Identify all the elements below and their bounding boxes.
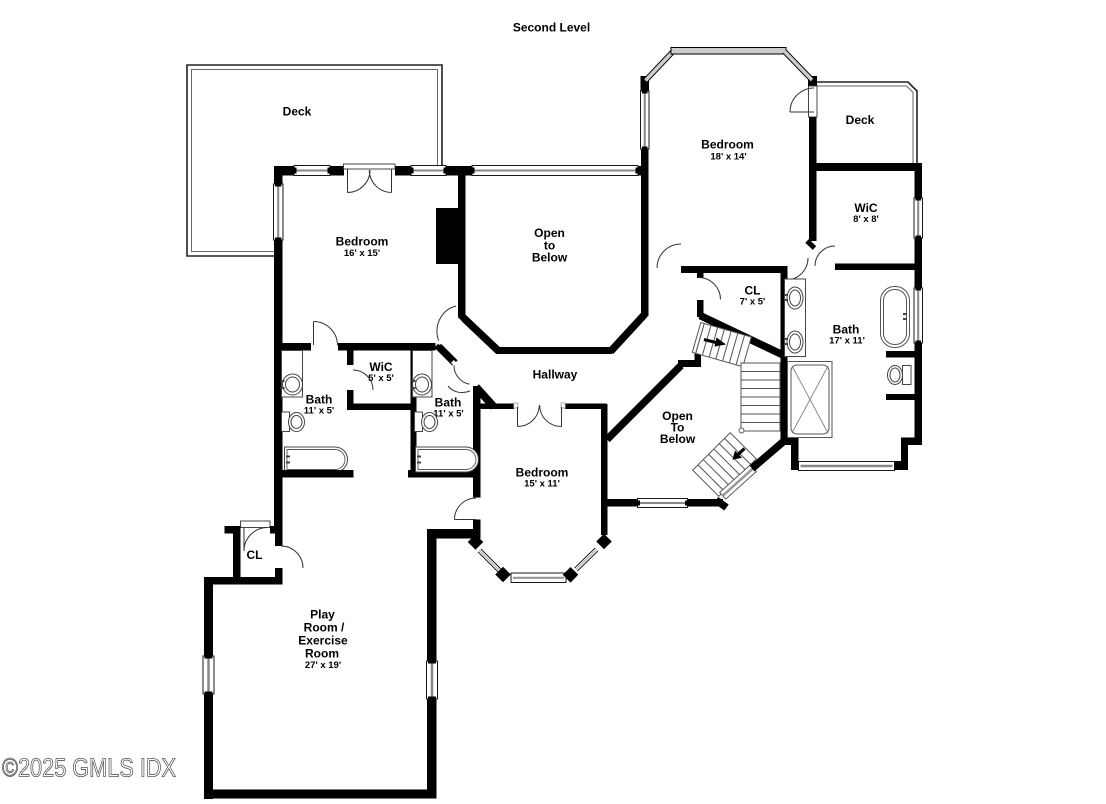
svg-text:11' x 5': 11' x 5' <box>433 409 463 420</box>
svg-text:©2025 GMLS IDX: ©2025 GMLS IDX <box>2 753 176 783</box>
svg-text:Exercise: Exercise <box>298 634 348 648</box>
svg-text:8' x 8': 8' x 8' <box>853 214 879 225</box>
svg-text:Second Level: Second Level <box>513 21 590 35</box>
svg-text:Room /: Room / <box>304 621 345 635</box>
svg-text:WiC: WiC <box>854 201 878 215</box>
svg-text:CL: CL <box>745 284 761 298</box>
svg-text:Below: Below <box>660 432 696 446</box>
svg-text:Bath: Bath <box>435 396 462 410</box>
svg-text:Bedroom: Bedroom <box>701 138 754 152</box>
svg-text:CL: CL <box>247 548 263 562</box>
svg-text:18' x 14': 18' x 14' <box>710 152 746 163</box>
svg-text:Deck: Deck <box>283 105 312 119</box>
svg-text:Bath: Bath <box>306 393 333 407</box>
svg-text:7' x 5': 7' x 5' <box>740 297 766 308</box>
svg-text:Bedroom: Bedroom <box>516 466 569 480</box>
svg-text:11' x 5': 11' x 5' <box>304 406 334 417</box>
svg-text:Bath: Bath <box>833 323 860 337</box>
svg-text:17' x 11': 17' x 11' <box>829 336 865 347</box>
svg-text:Play: Play <box>310 608 335 622</box>
svg-text:27' x 19': 27' x 19' <box>305 660 341 671</box>
svg-text:Bedroom: Bedroom <box>336 235 389 249</box>
svg-text:Deck: Deck <box>846 113 875 127</box>
svg-text:Below: Below <box>532 251 568 265</box>
svg-text:15' x 11': 15' x 11' <box>524 479 560 490</box>
svg-text:Hallway: Hallway <box>533 368 578 382</box>
svg-text:16' x 15': 16' x 15' <box>344 248 380 259</box>
svg-text:WiC: WiC <box>369 360 393 374</box>
svg-text:5' x 5': 5' x 5' <box>368 373 394 384</box>
svg-text:Room: Room <box>305 647 339 661</box>
